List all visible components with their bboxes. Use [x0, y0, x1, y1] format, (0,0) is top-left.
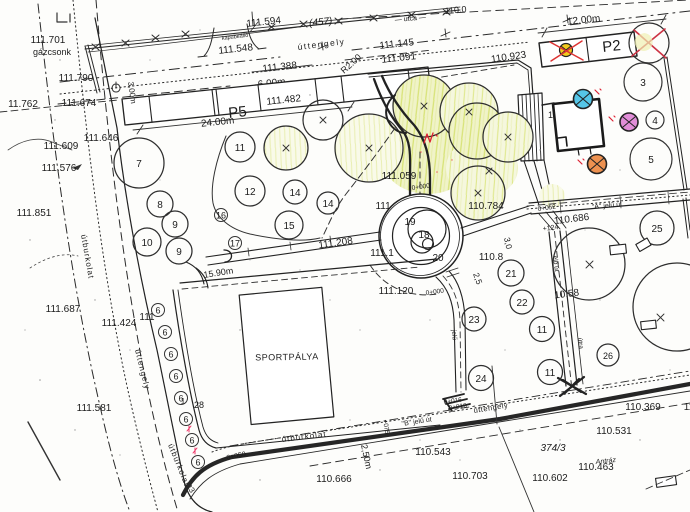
- svg-text:SPORTPÁLYA: SPORTPÁLYA: [255, 351, 319, 362]
- svg-text:P2: P2: [602, 37, 622, 56]
- svg-text:6: 6: [178, 394, 183, 404]
- svg-text:21: 21: [505, 269, 517, 280]
- svg-text:111.701: 111.701: [31, 35, 66, 46]
- svg-text:3: 3: [640, 78, 646, 89]
- svg-text:0+000: 0+000: [425, 287, 444, 297]
- svg-text:110.602: 110.602: [532, 473, 568, 484]
- svg-text:6: 6: [183, 415, 188, 425]
- svg-text:110.369: 110.369: [625, 402, 661, 413]
- svg-text:110.463: 110.463: [578, 462, 614, 473]
- svg-text:110.543: 110.543: [415, 447, 451, 458]
- svg-text:111.687: 111.687: [46, 304, 81, 315]
- svg-text:374/3: 374/3: [540, 443, 565, 454]
- svg-text:111.594: 111.594: [246, 15, 282, 30]
- svg-text:6: 6: [173, 372, 178, 382]
- svg-text:23: 23: [468, 315, 480, 326]
- svg-text:R2.00: R2.00: [339, 52, 364, 76]
- svg-text:14: 14: [322, 199, 334, 210]
- svg-text:12.00m: 12.00m: [567, 13, 601, 27]
- svg-text:útra: útra: [576, 337, 584, 349]
- svg-text:111.851: 111.851: [17, 208, 52, 219]
- svg-text:26: 26: [603, 351, 613, 361]
- svg-text:111.581: 111.581: [77, 403, 112, 414]
- svg-text:6: 6: [195, 458, 200, 468]
- svg-text:111.208: 111.208: [318, 236, 354, 252]
- svg-text:jelű: jelű: [450, 329, 458, 341]
- svg-text:14: 14: [289, 188, 301, 199]
- svg-text:11: 11: [537, 325, 548, 336]
- svg-text:111.576: 111.576: [42, 163, 77, 174]
- svg-text:111.1: 111.1: [370, 248, 394, 259]
- svg-text:4: 4: [652, 116, 658, 127]
- svg-text:gázcsonk: gázcsonk: [33, 47, 72, 57]
- svg-text:110.531: 110.531: [596, 426, 632, 437]
- svg-text:111.609: 111.609: [44, 141, 79, 152]
- svg-text:111.059: 111.059: [382, 171, 417, 182]
- svg-text:18: 18: [418, 230, 430, 241]
- svg-text:+124: +124: [542, 224, 559, 233]
- svg-text:3,0: 3,0: [502, 236, 514, 250]
- svg-text:6: 6: [155, 306, 160, 316]
- svg-text:28: 28: [194, 400, 204, 410]
- svg-text:110.8: 110.8: [479, 252, 504, 263]
- svg-text:11: 11: [684, 402, 690, 413]
- svg-text:útburkolat: útburkolat: [281, 430, 327, 444]
- svg-text:2,5: 2,5: [471, 271, 485, 286]
- svg-text:15: 15: [283, 221, 295, 232]
- svg-text:10: 10: [141, 238, 153, 249]
- svg-text:6: 6: [189, 436, 194, 446]
- svg-text:24.00m: 24.00m: [201, 115, 235, 129]
- svg-text:0+016: 0+016: [448, 402, 468, 412]
- svg-text:22: 22: [516, 298, 528, 309]
- svg-text:elő út: elő út: [551, 255, 560, 272]
- svg-text:6: 6: [162, 328, 167, 338]
- svg-text:19: 19: [404, 217, 416, 228]
- svg-text:9: 9: [172, 220, 178, 231]
- svg-text:2,50m: 2,50m: [359, 443, 374, 470]
- svg-text:111.091: 111.091: [381, 51, 417, 66]
- svg-text:20: 20: [432, 253, 444, 264]
- svg-text:111.548: 111.548: [218, 42, 254, 57]
- svg-text:6: 6: [168, 350, 173, 360]
- svg-text:111.120: 111.120: [379, 286, 414, 297]
- svg-text:útburkolat: útburkolat: [79, 234, 96, 280]
- svg-text:110.784: 110.784: [468, 201, 504, 212]
- svg-text:+075: +075: [381, 419, 391, 435]
- svg-text:9: 9: [176, 247, 182, 258]
- svg-text:15.90m: 15.90m: [203, 265, 234, 280]
- svg-text:útburkolat: útburkolat: [166, 442, 191, 487]
- svg-text:5: 5: [648, 155, 654, 166]
- svg-text:110.686: 110.686: [553, 212, 590, 227]
- svg-text:111.646: 111.646: [84, 133, 119, 144]
- svg-text:"A" jelű út: "A" jelű út: [592, 201, 623, 211]
- svg-text:12: 12: [244, 187, 256, 198]
- svg-text:25: 25: [651, 224, 663, 235]
- svg-text:(457): (457): [309, 16, 333, 29]
- svg-text:17: 17: [230, 239, 240, 249]
- svg-text:1: 1: [548, 110, 553, 120]
- svg-text:110.666: 110.666: [316, 474, 352, 485]
- svg-text:24: 24: [475, 374, 487, 385]
- svg-text:110.0: 110.0: [444, 4, 467, 16]
- svg-text:111.145: 111.145: [379, 37, 415, 52]
- svg-text:0+050: 0+050: [226, 451, 247, 462]
- svg-text:10.58: 10.58: [554, 287, 581, 301]
- svg-text:11: 11: [545, 368, 556, 379]
- svg-text:16: 16: [216, 211, 226, 221]
- svg-text:110.703: 110.703: [452, 471, 488, 482]
- svg-text:úttengely: úttengely: [297, 36, 346, 52]
- svg-text:8: 8: [157, 200, 163, 211]
- svg-text:7: 7: [136, 159, 142, 170]
- svg-text:úttengely: úttengely: [133, 348, 152, 390]
- svg-text:úttengely: úttengely: [473, 401, 509, 415]
- svg-text:111.424: 111.424: [102, 318, 137, 329]
- svg-text:11: 11: [235, 143, 246, 154]
